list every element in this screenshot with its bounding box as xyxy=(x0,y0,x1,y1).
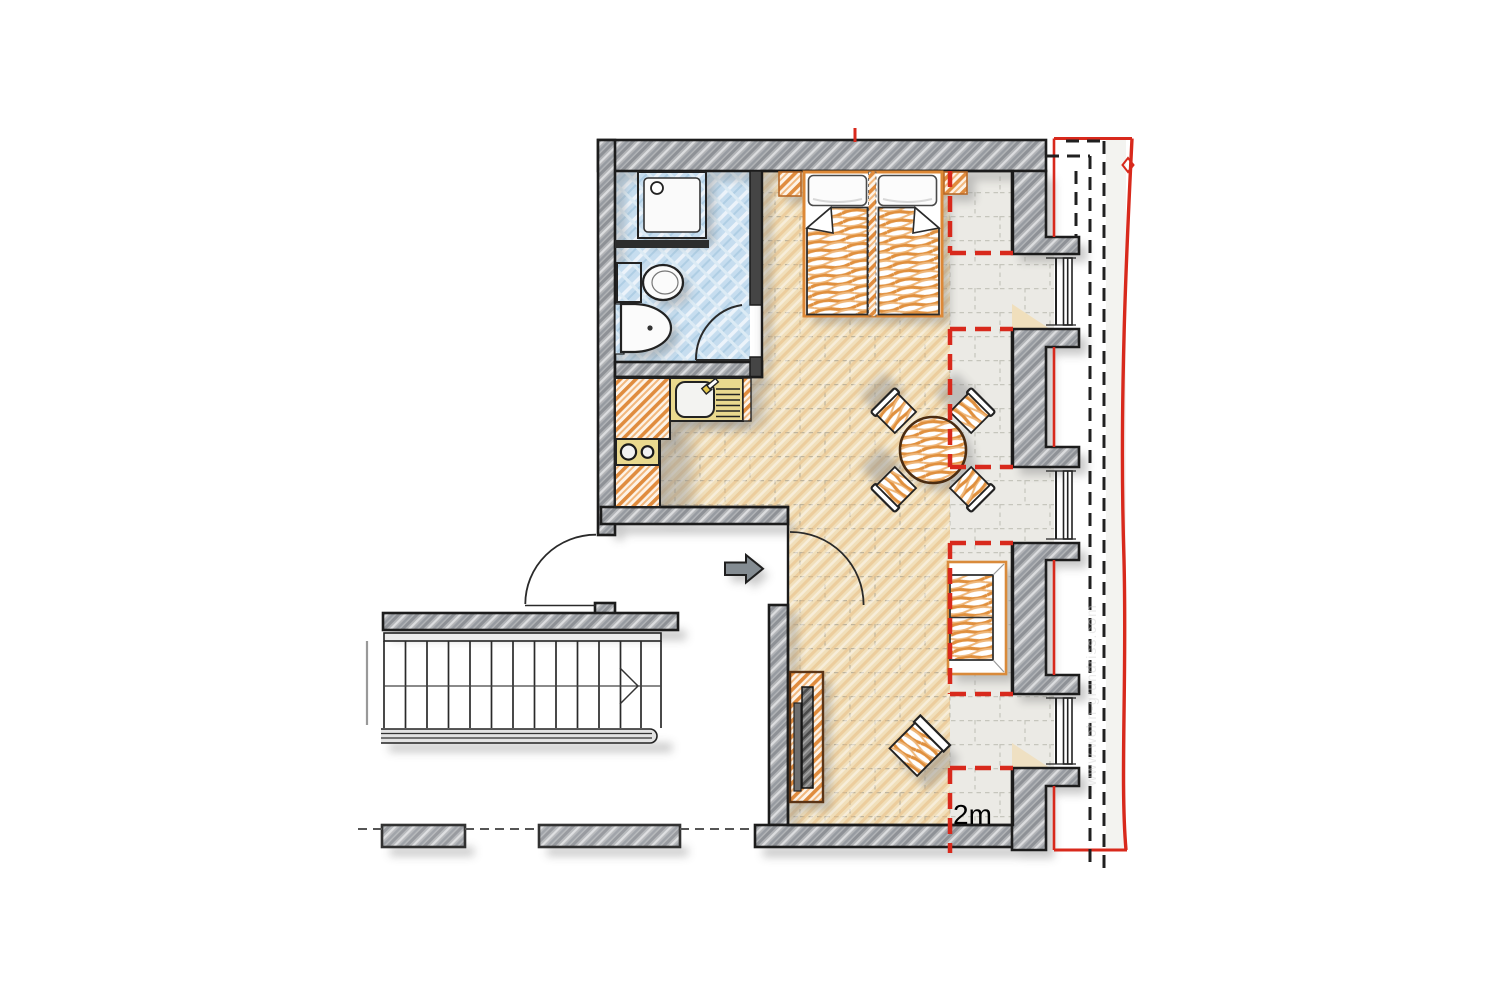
svg-text:2m: 2m xyxy=(953,799,992,830)
svg-text:www.wohn-grundriss.com: www.wohn-grundriss.com xyxy=(1083,604,1099,787)
